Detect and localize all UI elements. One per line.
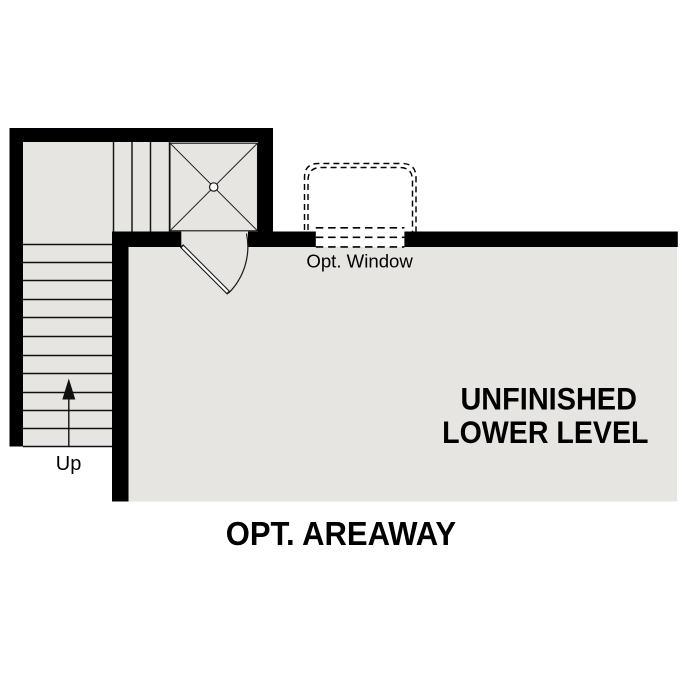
- svg-text:OPT. AREAWAY: OPT. AREAWAY: [226, 515, 457, 552]
- svg-text:LOWER LEVEL: LOWER LEVEL: [442, 416, 648, 451]
- svg-text:UNFINISHED: UNFINISHED: [460, 382, 636, 416]
- svg-text:Opt. Window: Opt. Window: [306, 250, 413, 271]
- svg-text:Up: Up: [56, 453, 82, 475]
